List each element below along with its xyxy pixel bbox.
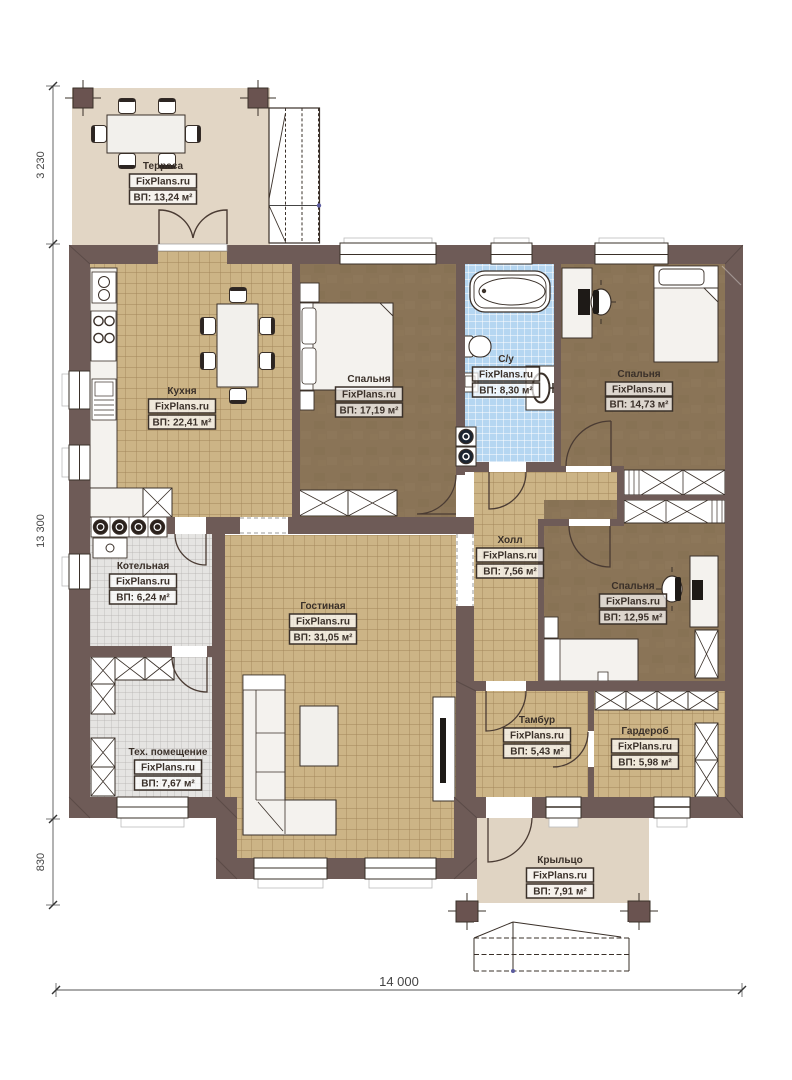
svg-text:ВП: 5,43 м²: ВП: 5,43 м²: [510, 747, 564, 758]
svg-text:FixPlans.ru: FixPlans.ru: [116, 577, 170, 588]
svg-text:FixPlans.ru: FixPlans.ru: [510, 731, 564, 742]
svg-text:FixPlans.ru: FixPlans.ru: [479, 370, 533, 381]
svg-text:ВП: 7,56 м²: ВП: 7,56 м²: [483, 567, 537, 578]
svg-text:830: 830: [35, 853, 47, 871]
svg-text:Гардероб: Гардероб: [621, 725, 668, 737]
svg-text:ВП: 14,73 м²: ВП: 14,73 м²: [609, 400, 669, 411]
svg-text:FixPlans.ru: FixPlans.ru: [606, 597, 660, 608]
svg-text:Крыльцо: Крыльцо: [537, 855, 583, 866]
svg-text:Холл: Холл: [497, 535, 522, 546]
svg-text:ВП: 7,91 м²: ВП: 7,91 м²: [533, 887, 587, 898]
svg-text:ВП: 7,67 м²: ВП: 7,67 м²: [141, 779, 195, 790]
svg-text:Кухня: Кухня: [167, 386, 196, 397]
svg-text:FixPlans.ru: FixPlans.ru: [612, 385, 666, 396]
svg-text:FixPlans.ru: FixPlans.ru: [296, 617, 350, 628]
svg-text:С/у: С/у: [498, 354, 514, 365]
svg-text:Спальня: Спальня: [617, 369, 660, 380]
svg-text:Гостиная: Гостиная: [300, 601, 345, 612]
svg-text:14 000: 14 000: [379, 974, 419, 989]
svg-text:Спальня: Спальня: [347, 374, 390, 385]
svg-text:ВП: 8,30 м²: ВП: 8,30 м²: [479, 386, 533, 397]
svg-text:Тех. помещение: Тех. помещение: [129, 747, 208, 758]
svg-text:ВП: 12,95 м²: ВП: 12,95 м²: [603, 613, 663, 624]
svg-text:ВП: 31,05 м²: ВП: 31,05 м²: [293, 633, 353, 644]
svg-text:ВП: 13,24 м²: ВП: 13,24 м²: [133, 193, 193, 204]
svg-text:FixPlans.ru: FixPlans.ru: [533, 871, 587, 882]
svg-text:FixPlans.ru: FixPlans.ru: [618, 742, 672, 753]
svg-text:Спальня: Спальня: [611, 581, 654, 592]
svg-text:Котельная: Котельная: [117, 561, 170, 572]
svg-text:ВП: 5,98 м²: ВП: 5,98 м²: [618, 758, 672, 769]
svg-text:FixPlans.ru: FixPlans.ru: [342, 390, 396, 401]
svg-text:Тамбур: Тамбур: [519, 714, 555, 726]
svg-text:FixPlans.ru: FixPlans.ru: [141, 763, 195, 774]
svg-text:FixPlans.ru: FixPlans.ru: [483, 551, 537, 562]
svg-text:ВП: 6,24 м²: ВП: 6,24 м²: [116, 593, 170, 604]
svg-text:FixPlans.ru: FixPlans.ru: [155, 402, 209, 413]
svg-text:Терраса: Терраса: [143, 161, 184, 172]
svg-text:ВП: 17,19 м²: ВП: 17,19 м²: [339, 406, 399, 417]
svg-text:3 230: 3 230: [35, 151, 47, 179]
svg-text:ВП: 22,41 м²: ВП: 22,41 м²: [152, 418, 212, 429]
svg-text:13 300: 13 300: [35, 514, 47, 548]
svg-text:FixPlans.ru: FixPlans.ru: [136, 177, 190, 188]
